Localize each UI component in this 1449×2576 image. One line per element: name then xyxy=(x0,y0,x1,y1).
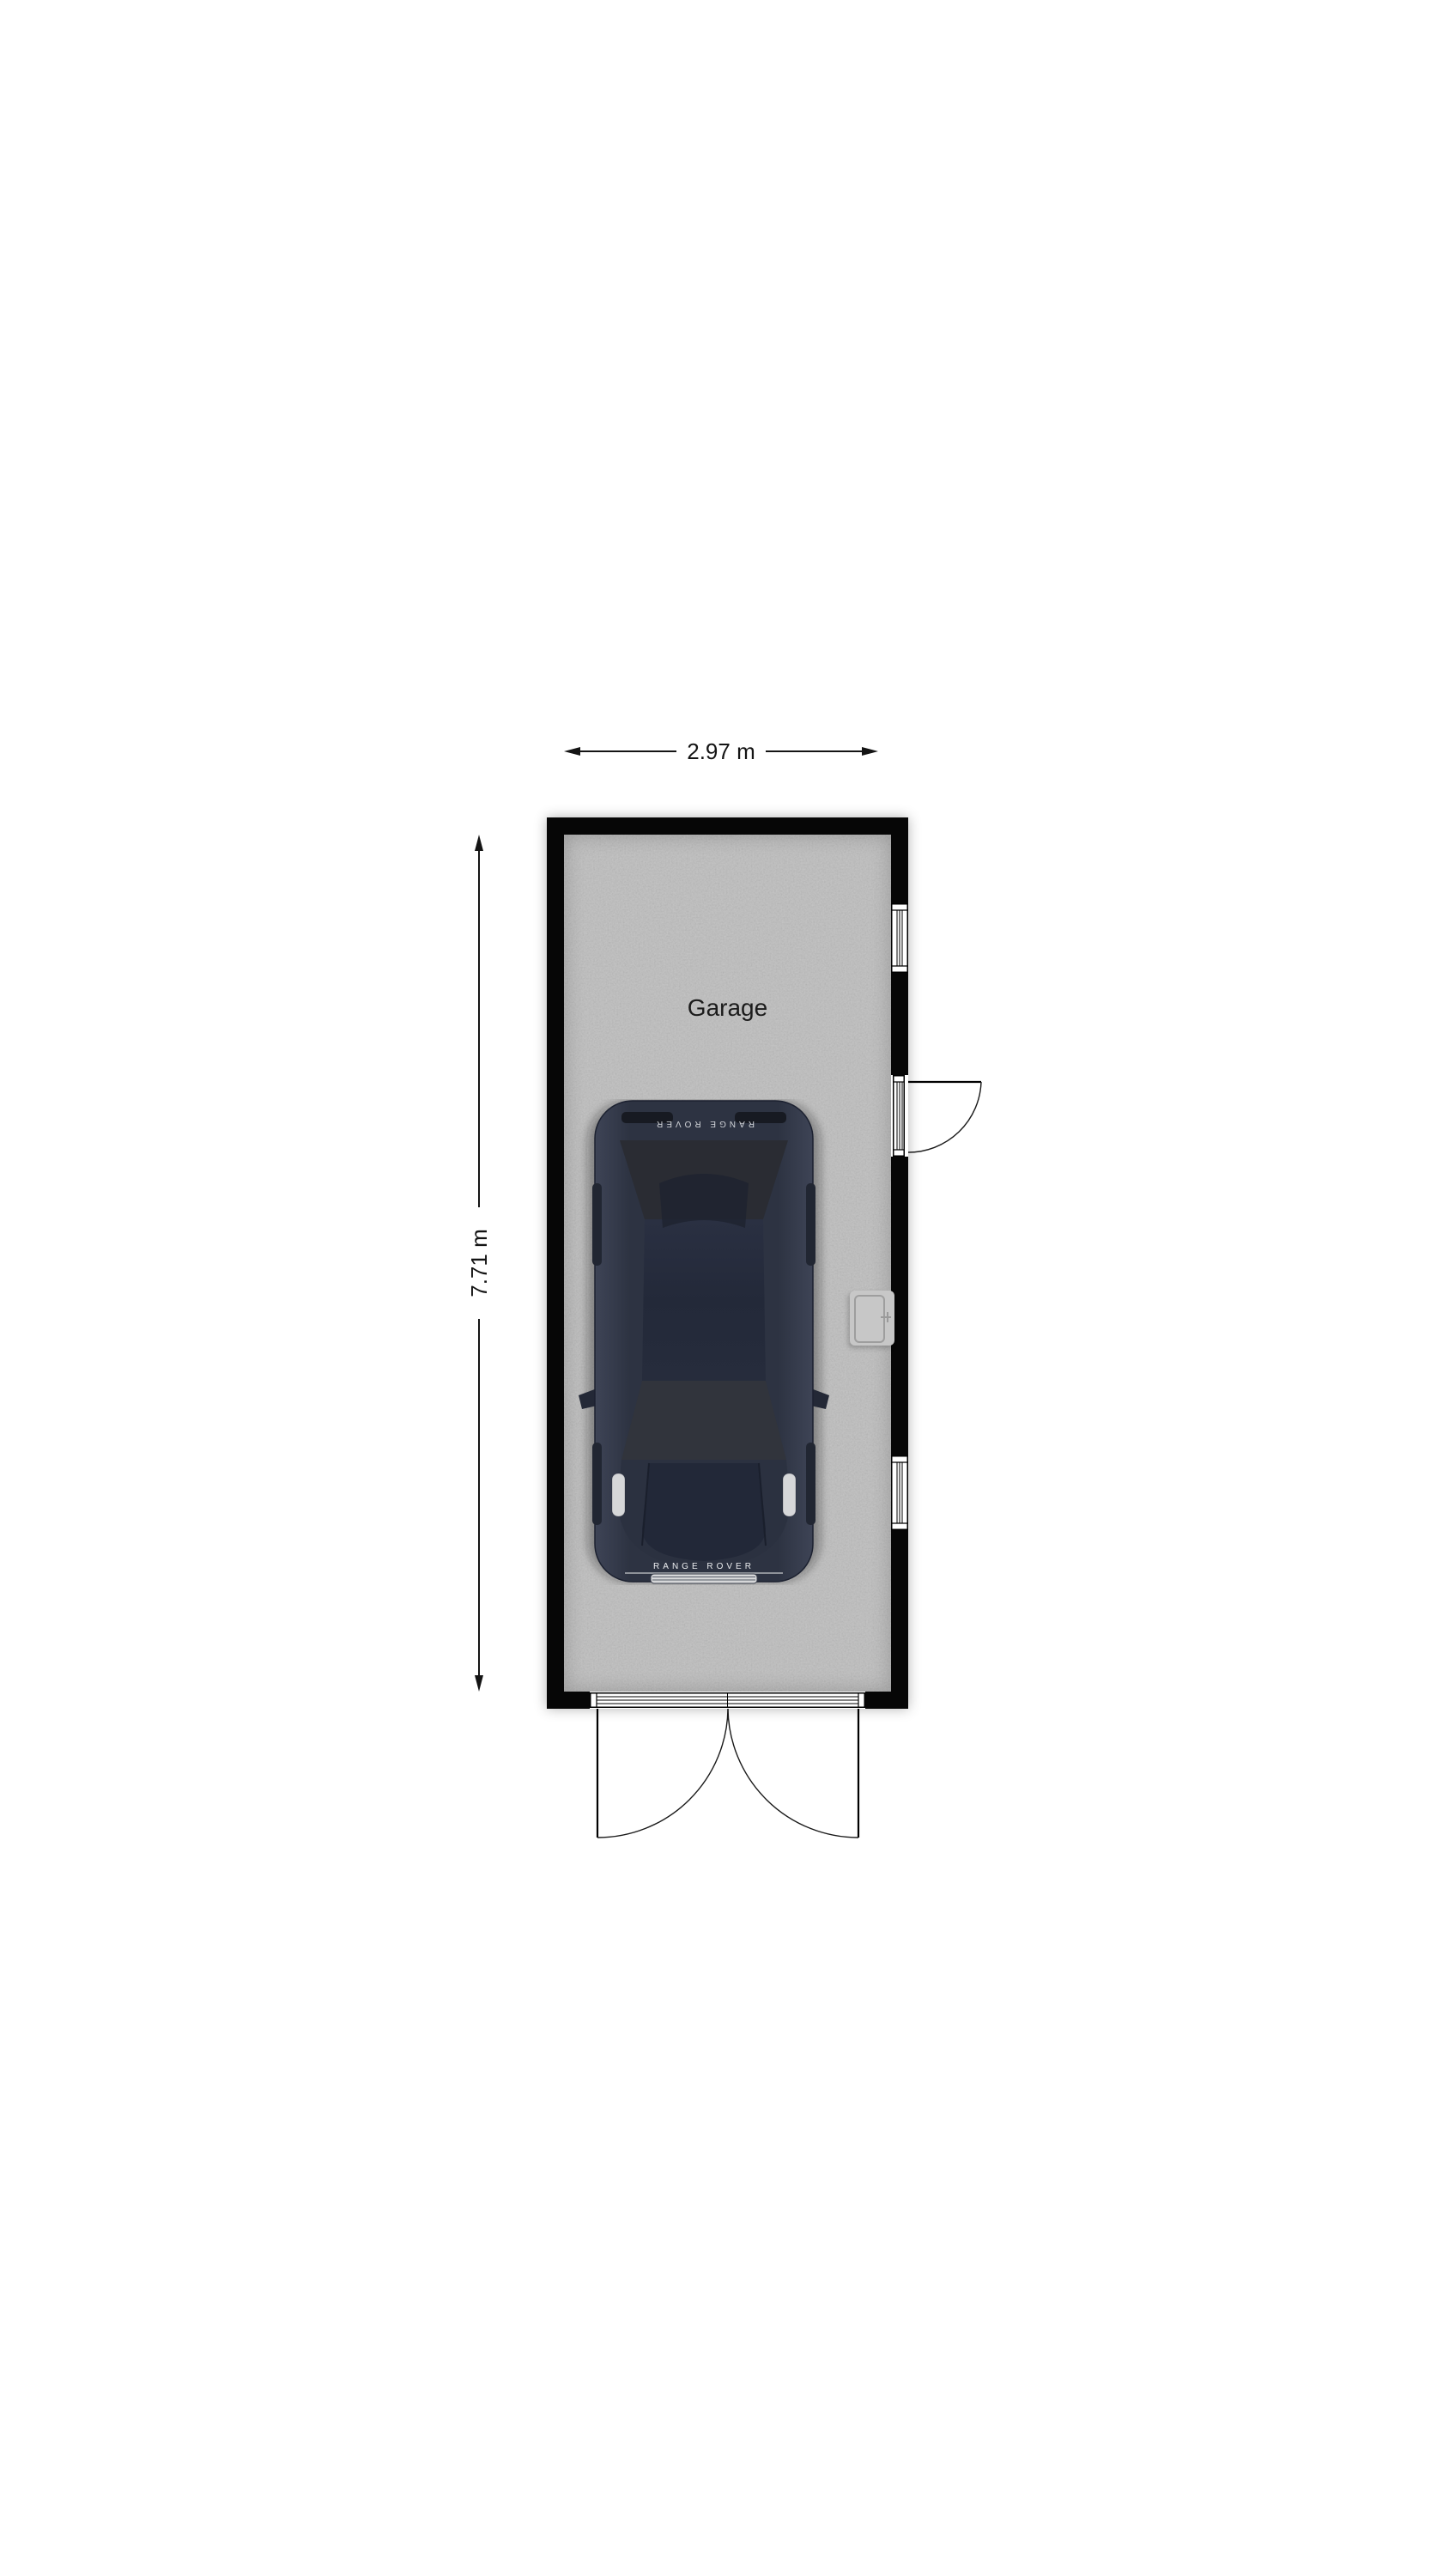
sunroof xyxy=(659,1174,749,1228)
garage-door-right-leaf-swing xyxy=(728,1709,858,1838)
hood-vent-left-icon xyxy=(612,1473,625,1516)
rear-badge-text: RANGE ROVER xyxy=(653,1119,755,1128)
garage-door-left-leaf-swing xyxy=(597,1709,728,1838)
rear-left-wheel xyxy=(592,1183,602,1266)
car-top-view: RANGE ROVER RANGE ROVER xyxy=(573,1099,834,1585)
rear-right-wheel xyxy=(806,1183,815,1266)
front-left-wheel xyxy=(592,1443,602,1525)
car-roof xyxy=(642,1219,766,1381)
side-door-swing xyxy=(908,1082,981,1152)
floorplan-page: 2.97 m 7.71 m Garage xyxy=(0,0,1449,2576)
front-right-wheel xyxy=(806,1443,815,1525)
hood-center-panel xyxy=(642,1463,766,1561)
hood-vent-right-icon xyxy=(783,1473,796,1516)
front-grille-icon xyxy=(651,1574,757,1583)
front-badge-text: RANGE ROVER xyxy=(653,1562,755,1571)
windshield xyxy=(621,1381,786,1460)
